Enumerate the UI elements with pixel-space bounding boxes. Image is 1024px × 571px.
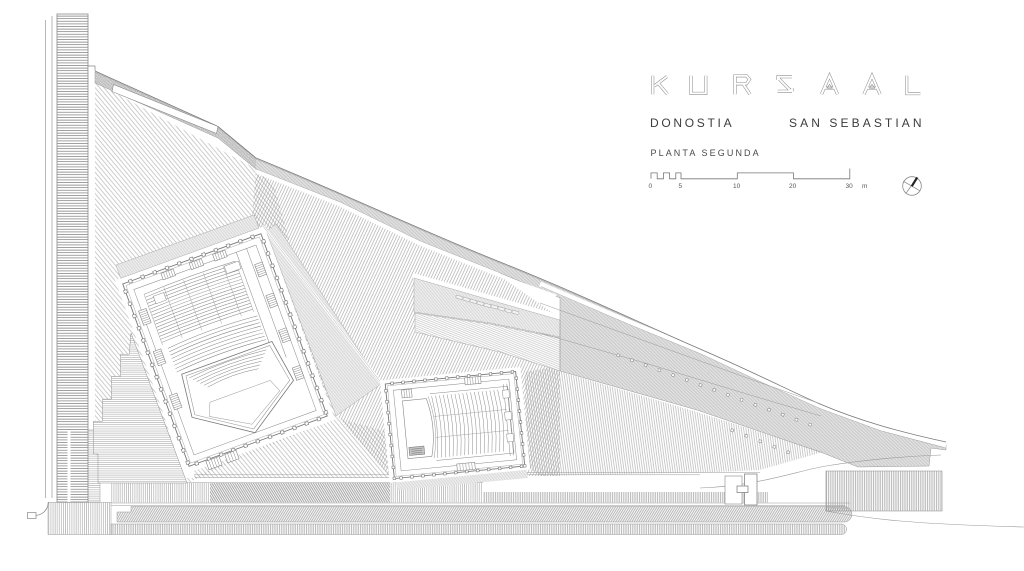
svg-text:SAN SEBASTIAN: SAN SEBASTIAN <box>789 116 925 130</box>
svg-text:30: 30 <box>846 183 854 190</box>
svg-text:5: 5 <box>679 183 683 190</box>
svg-text:DONOSTIA: DONOSTIA <box>650 116 734 130</box>
svg-text:0: 0 <box>649 183 653 190</box>
svg-text:PLANTA SEGUNDA: PLANTA SEGUNDA <box>651 148 761 158</box>
svg-text:20: 20 <box>789 183 797 190</box>
svg-text:m: m <box>862 183 867 190</box>
svg-text:10: 10 <box>733 183 741 190</box>
